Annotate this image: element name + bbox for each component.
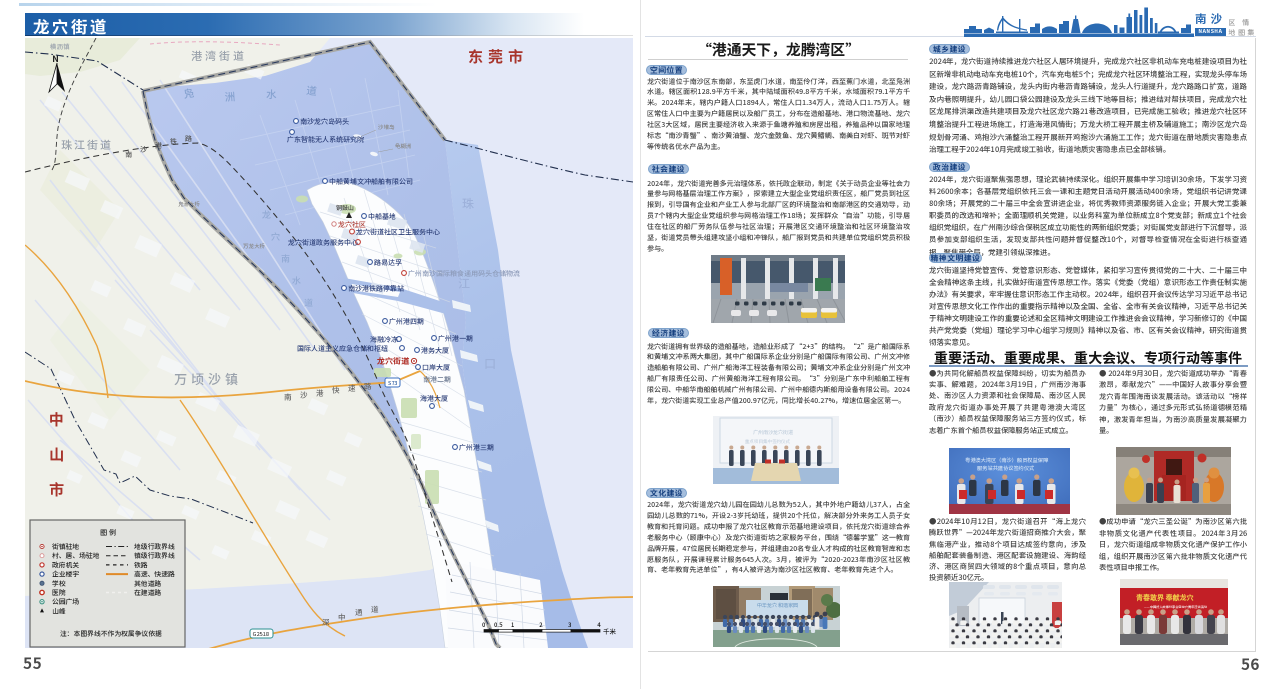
svg-text:穴: 穴 xyxy=(271,230,281,243)
svg-text:万顷沙镇: 万顷沙镇 xyxy=(174,369,242,388)
svg-text:港湾街道: 港湾街道 xyxy=(191,48,247,64)
svg-text:龙穴街道社区卫生服务中心: 龙穴街道社区卫生服务中心 xyxy=(356,228,441,238)
svg-text:港务大厦: 港务大厦 xyxy=(421,346,449,356)
svg-text:水: 水 xyxy=(266,87,278,102)
svg-text:中船基地: 中船基地 xyxy=(368,212,397,222)
svg-text:在建道路: 在建道路 xyxy=(133,587,161,597)
svg-text:路易达孚: 路易达孚 xyxy=(373,258,402,268)
svg-text:0: 0 xyxy=(482,620,485,629)
svg-text:重点项目集中签约仪式: 重点项目集中签约仪式 xyxy=(745,438,790,445)
svg-text:沙堆岛: 沙堆岛 xyxy=(378,123,395,131)
svg-text:水: 水 xyxy=(291,274,301,287)
svg-text:道: 道 xyxy=(304,296,313,309)
svg-text:广州港一期: 广州港一期 xyxy=(438,334,473,344)
svg-text:千米: 千米 xyxy=(603,626,617,636)
svg-text:4: 4 xyxy=(597,620,601,629)
svg-text:广州港四期: 广州港四期 xyxy=(389,317,424,327)
svg-text:龙穴街道: 龙穴街道 xyxy=(377,356,409,367)
svg-text:山: 山 xyxy=(49,444,64,465)
svg-text:海港大厦: 海港大厦 xyxy=(420,394,448,404)
svg-text:龟糊洲: 龟糊洲 xyxy=(395,142,412,150)
svg-text:路: 路 xyxy=(363,381,372,392)
svg-text:港: 港 xyxy=(155,141,163,151)
svg-text:图例: 图例 xyxy=(100,528,118,538)
svg-text:珠: 珠 xyxy=(462,195,475,212)
svg-text:道: 道 xyxy=(371,604,379,615)
svg-text:中: 中 xyxy=(49,409,64,430)
svg-text:南: 南 xyxy=(281,252,290,265)
svg-text:南: 南 xyxy=(284,392,292,403)
svg-text:深: 深 xyxy=(322,617,330,628)
svg-text:珠江街道: 珠江街道 xyxy=(61,137,113,153)
svg-text:口: 口 xyxy=(484,355,496,372)
svg-text:S73: S73 xyxy=(388,379,398,387)
svg-text:中华龙穴 和谐家园: 中华龙穴 和谐家园 xyxy=(757,602,798,609)
svg-text:0.5: 0.5 xyxy=(494,620,503,629)
svg-text:道: 道 xyxy=(306,83,319,99)
svg-text:南港二期: 南港二期 xyxy=(423,375,451,385)
svg-text:服务站共建协议签约仪式: 服务站共建协议签约仪式 xyxy=(976,465,1035,472)
svg-text:广州港三期: 广州港三期 xyxy=(459,443,494,453)
svg-text:路: 路 xyxy=(184,134,192,144)
svg-text:中: 中 xyxy=(338,612,346,623)
svg-text:南: 南 xyxy=(125,150,132,160)
svg-text:广州南沙国际粮食通用码头仓储物流: 广州南沙国际粮食通用码头仓储物流 xyxy=(408,269,520,279)
svg-text:2: 2 xyxy=(539,620,543,629)
svg-text:国际人道主义应急仓储和枢纽: 国际人道主义应急仓储和枢纽 xyxy=(297,344,388,354)
svg-text:口岸大厦: 口岸大厦 xyxy=(422,363,450,373)
svg-text:港: 港 xyxy=(316,388,324,399)
svg-text:广东智能无人系统研究院: 广东智能无人系统研究院 xyxy=(287,135,364,145)
svg-text:广州南沙龙穴街道: 广州南沙龙穴街道 xyxy=(753,429,794,436)
svg-text:南沙龙穴岛码头: 南沙龙穴岛码头 xyxy=(300,117,349,127)
svg-text:沙: 沙 xyxy=(140,145,147,155)
svg-text:东莞市: 东莞市 xyxy=(468,46,528,67)
svg-text:沙: 沙 xyxy=(300,390,308,401)
svg-text:G2518: G2518 xyxy=(253,630,270,638)
svg-text:粤港澳大湾区（南沙）船员权益保障: 粤港澳大湾区（南沙）船员权益保障 xyxy=(965,457,1048,464)
svg-text:山峰: 山峰 xyxy=(52,605,66,615)
svg-text:3: 3 xyxy=(568,620,571,629)
svg-text:1: 1 xyxy=(511,620,514,629)
svg-text:南沙港铁路停靠站: 南沙港铁路停靠站 xyxy=(348,284,404,294)
svg-text:凫洲大桥: 凫洲大桥 xyxy=(178,200,201,208)
svg-text:万龙大桥: 万龙大桥 xyxy=(243,242,266,250)
svg-text:快: 快 xyxy=(332,385,340,396)
svg-text:速: 速 xyxy=(348,383,356,394)
svg-text:龙穴街道政务服务中心: 龙穴街道政务服务中心 xyxy=(288,238,359,248)
svg-text:——中国好人故事分享会暨龙穴青年座谈活动: ——中国好人故事分享会暨龙穴青年座谈活动 xyxy=(1144,604,1208,609)
svg-text:铜鼓山: 铜鼓山 xyxy=(336,203,354,212)
svg-text:N: N xyxy=(52,52,59,65)
svg-text:通: 通 xyxy=(355,607,363,618)
svg-text:横沥镇: 横沥镇 xyxy=(50,41,70,51)
svg-text:洲: 洲 xyxy=(224,89,236,105)
svg-text:市: 市 xyxy=(49,479,64,500)
svg-text:注：本图界线不作为权属争议依据: 注：本图界线不作为权属争议依据 xyxy=(60,628,162,638)
svg-text:青春敢界 奉献龙穴: 青春敢界 奉献龙穴 xyxy=(1136,593,1194,603)
svg-text:铁: 铁 xyxy=(170,137,177,147)
svg-text:中船黄埔文冲船舶有限公司: 中船黄埔文冲船舶有限公司 xyxy=(329,177,413,187)
svg-text:龙: 龙 xyxy=(262,208,271,221)
